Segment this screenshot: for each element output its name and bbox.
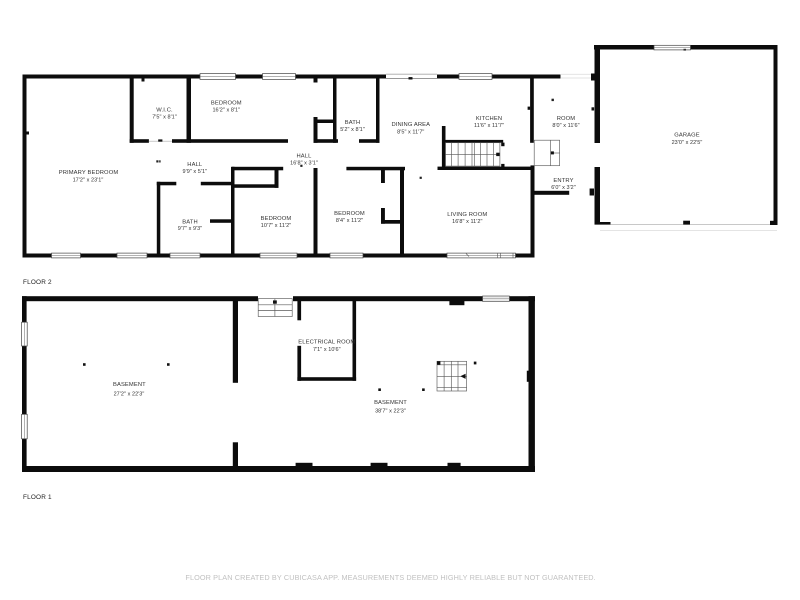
svg-text:7'1" x 10'6": 7'1" x 10'6": [313, 347, 341, 353]
svg-text:BASEMENT: BASEMENT: [113, 382, 146, 388]
svg-text:BASEMENT: BASEMENT: [374, 400, 407, 406]
svg-text:5'2" x 8'1": 5'2" x 8'1": [340, 127, 365, 133]
svg-text:HALL: HALL: [297, 154, 313, 160]
svg-text:17'2" x 23'1": 17'2" x 23'1": [73, 178, 104, 184]
svg-text:16'8" x 11'2": 16'8" x 11'2": [452, 219, 482, 225]
svg-text:BEDROOM: BEDROOM: [334, 211, 365, 217]
svg-text:FLOOR PLAN CREATED BY CUBICASA: FLOOR PLAN CREATED BY CUBICASA APP. MEAS…: [185, 573, 595, 582]
svg-text:BATH: BATH: [182, 219, 198, 225]
svg-text:27'2" x 22'3": 27'2" x 22'3": [114, 391, 145, 397]
svg-text:23'0" x 22'5": 23'0" x 22'5": [672, 140, 703, 146]
svg-text:8'4" x 11'2": 8'4" x 11'2": [336, 218, 363, 224]
svg-text:ENTRY: ENTRY: [553, 178, 573, 184]
svg-text:7'5" x 8'1": 7'5" x 8'1": [152, 115, 177, 121]
svg-text:8'5" x 11'7": 8'5" x 11'7": [397, 129, 424, 135]
svg-text:9'7" x 9'3": 9'7" x 9'3": [178, 226, 203, 232]
svg-text:6'0" x 3'2": 6'0" x 3'2": [551, 185, 576, 191]
svg-text:8'0" x 11'6": 8'0" x 11'6": [552, 123, 579, 129]
svg-text:PRIMARY BEDROOM: PRIMARY BEDROOM: [59, 170, 119, 176]
svg-text:HALL: HALL: [187, 162, 203, 168]
svg-text:BEDROOM: BEDROOM: [211, 101, 242, 107]
svg-text:FLOOR 1: FLOOR 1: [23, 494, 52, 501]
svg-text:LIVING ROOM: LIVING ROOM: [447, 212, 487, 218]
svg-text:ELECTRICAL ROOM: ELECTRICAL ROOM: [298, 340, 355, 346]
svg-text:38'7" x 22'3": 38'7" x 22'3": [375, 409, 406, 415]
svg-text:KITCHEN: KITCHEN: [476, 116, 502, 122]
svg-text:16'8" x 3'1": 16'8" x 3'1": [290, 161, 318, 167]
svg-text:10'7" x 11'2": 10'7" x 11'2": [261, 223, 291, 229]
svg-text:BATH: BATH: [345, 120, 361, 126]
svg-text:BEDROOM: BEDROOM: [261, 216, 292, 222]
svg-text:W.I.C.: W.I.C.: [156, 108, 173, 114]
svg-text:16'2" x 8'1": 16'2" x 8'1": [212, 108, 240, 114]
svg-text:FLOOR 2: FLOOR 2: [23, 279, 52, 286]
svg-text:DINING AREA: DINING AREA: [391, 122, 430, 128]
svg-text:ROOM: ROOM: [557, 116, 576, 122]
svg-text:GARAGE: GARAGE: [674, 133, 700, 139]
svg-text:11'6" x 11'7": 11'6" x 11'7": [474, 123, 504, 129]
svg-text:9'9" x 5'1": 9'9" x 5'1": [182, 169, 207, 175]
